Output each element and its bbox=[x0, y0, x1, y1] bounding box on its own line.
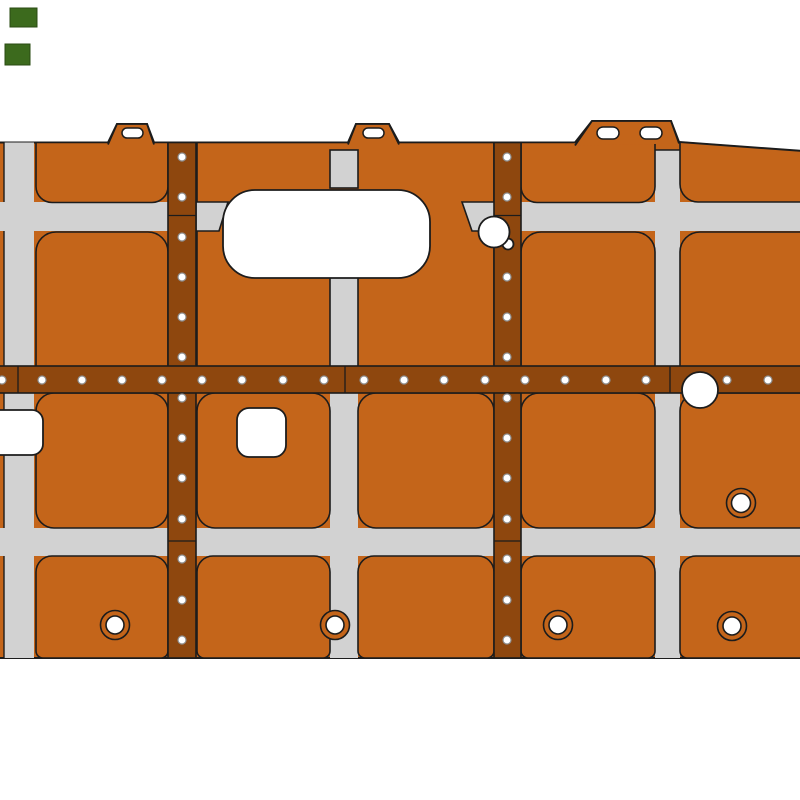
pocket-e4 bbox=[680, 556, 800, 658]
rivet-hole bbox=[178, 474, 186, 482]
rivet-hole bbox=[178, 596, 186, 604]
pocket-d4 bbox=[521, 556, 655, 658]
pocket-c4 bbox=[358, 556, 494, 658]
rivet-hole bbox=[178, 273, 186, 281]
rivet-hole bbox=[642, 376, 650, 384]
rivet-hole bbox=[503, 153, 511, 161]
grommet-hole bbox=[106, 616, 124, 634]
rivet-hole bbox=[503, 596, 511, 604]
web-strip-lower-band bbox=[0, 528, 800, 556]
rivet-hole bbox=[503, 193, 511, 201]
pocket-e1 bbox=[680, 142, 800, 202]
pocket-a2 bbox=[36, 232, 168, 367]
rivet-hole bbox=[481, 376, 489, 384]
rivet-hole bbox=[503, 555, 511, 563]
web-strip-center-column-mid bbox=[330, 272, 358, 368]
rivet-hole bbox=[503, 273, 511, 281]
rivet-hole bbox=[198, 376, 206, 384]
rivet-hole bbox=[503, 394, 511, 402]
web-strip-center-column-top bbox=[330, 150, 358, 188]
rivet-hole bbox=[503, 474, 511, 482]
rivet-hole bbox=[320, 376, 328, 384]
pocket-b4 bbox=[197, 556, 330, 658]
part-drawing bbox=[0, 0, 800, 800]
rivet-hole bbox=[178, 313, 186, 321]
edge-tab-3 bbox=[575, 121, 679, 146]
rivet-hole bbox=[764, 376, 772, 384]
pocket-a3 bbox=[36, 393, 168, 528]
rivet-hole bbox=[118, 376, 126, 384]
tab-slot bbox=[640, 127, 662, 139]
rivet-hole bbox=[158, 376, 166, 384]
rivet-hole bbox=[279, 376, 287, 384]
pocket-a4 bbox=[36, 556, 168, 658]
rivet-hole bbox=[0, 376, 6, 384]
web-strip-upper-band-left bbox=[0, 202, 196, 231]
pocket-d2 bbox=[521, 232, 655, 367]
rivet-hole bbox=[178, 555, 186, 563]
rivet-hole bbox=[503, 515, 511, 523]
obround-cutout bbox=[223, 190, 430, 278]
pocket-e2 bbox=[680, 232, 800, 367]
rivet-hole bbox=[360, 376, 368, 384]
circular-cutout-small bbox=[479, 217, 510, 248]
web-strip-upper-band-right bbox=[496, 202, 800, 231]
rivet-hole bbox=[178, 515, 186, 523]
pocket-a1 bbox=[36, 143, 168, 203]
rivet-hole bbox=[440, 376, 448, 384]
grommet-hole bbox=[723, 617, 741, 635]
tab-slot bbox=[122, 128, 143, 138]
tab-slot bbox=[363, 128, 384, 138]
square-cutout-center bbox=[237, 408, 286, 457]
rivet-hole bbox=[503, 313, 511, 321]
green-marker bbox=[5, 44, 30, 65]
rivet-hole bbox=[178, 153, 186, 161]
pocket-d3 bbox=[521, 393, 655, 528]
rivet-hole bbox=[178, 434, 186, 442]
rivet-hole bbox=[178, 193, 186, 201]
rivet-hole bbox=[521, 376, 529, 384]
square-cutout-left bbox=[0, 410, 43, 455]
cad-viewport[interactable] bbox=[0, 0, 800, 800]
rivet-hole bbox=[723, 376, 731, 384]
rivet-hole bbox=[400, 376, 408, 384]
rivet-hole bbox=[178, 353, 186, 361]
pocket-c3 bbox=[358, 393, 494, 528]
rivet-hole bbox=[561, 376, 569, 384]
tab-slot bbox=[597, 127, 619, 139]
grommet-hole bbox=[549, 616, 567, 634]
rivet-hole bbox=[503, 434, 511, 442]
rivet-hole bbox=[178, 394, 186, 402]
rivet-hole bbox=[78, 376, 86, 384]
green-marker bbox=[10, 8, 37, 27]
rivet-hole bbox=[503, 636, 511, 644]
rivet-hole bbox=[178, 233, 186, 241]
rivet-hole bbox=[238, 376, 246, 384]
grommet-hole bbox=[326, 616, 344, 634]
rivet-hole bbox=[178, 636, 186, 644]
rivet-hole bbox=[38, 376, 46, 384]
grommet-hole bbox=[732, 494, 751, 513]
rivet-hole bbox=[503, 353, 511, 361]
rivet-hole bbox=[602, 376, 610, 384]
pocket-d1 bbox=[521, 143, 655, 203]
circular-cutout-large bbox=[682, 372, 718, 408]
